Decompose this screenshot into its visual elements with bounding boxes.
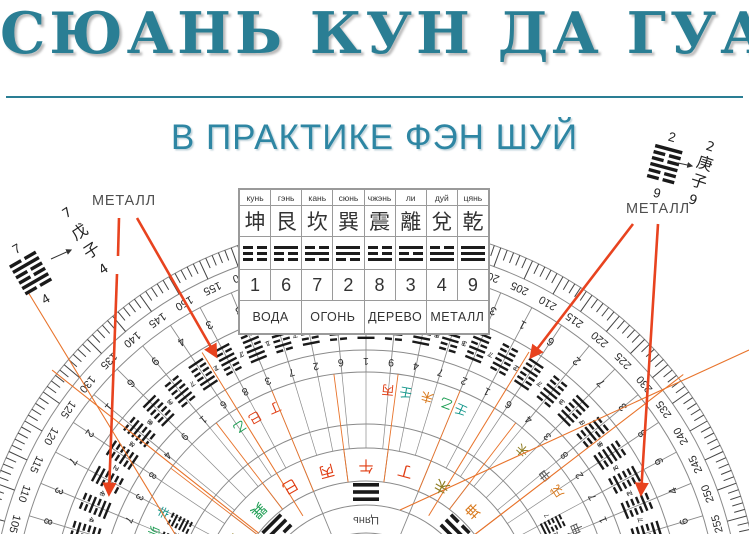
svg-text:7: 7	[122, 515, 135, 525]
trigram-name-cell: ли	[395, 190, 426, 206]
svg-text:丙: 丙	[381, 382, 395, 398]
trigram-icon	[302, 246, 332, 261]
trigram-symbols-row	[240, 237, 489, 270]
svg-text:3: 3	[203, 317, 214, 331]
trigram-symbol-cell	[271, 237, 302, 270]
svg-text:220: 220	[589, 329, 611, 350]
element-cell: МЕТАЛЛ	[426, 301, 488, 334]
annotation-right: 292庚子9	[642, 126, 720, 210]
trigram-icon	[271, 246, 301, 261]
svg-text:1: 1	[363, 355, 369, 367]
svg-text:7: 7	[436, 365, 445, 378]
hanzi-cell: 離	[395, 206, 426, 237]
svg-text:未: 未	[419, 388, 436, 406]
trigram-icon	[333, 246, 363, 261]
svg-text:子: 子	[688, 170, 709, 193]
trigram-number-cell: 6	[271, 270, 302, 301]
svg-text:9: 9	[652, 185, 663, 201]
svg-text:8: 8	[41, 516, 54, 526]
hanzi-cell: 艮	[271, 206, 302, 237]
svg-text:巳: 巳	[279, 475, 301, 498]
svg-text:7: 7	[287, 366, 296, 379]
svg-text:壬: 壬	[398, 384, 413, 401]
svg-text:3: 3	[263, 374, 273, 387]
hanzi-cell: 乾	[457, 206, 488, 237]
svg-text:戌: 戌	[547, 482, 567, 501]
element-cell: ВОДА	[240, 301, 302, 334]
svg-text:午: 午	[358, 457, 373, 475]
svg-text:8: 8	[239, 385, 250, 398]
element-cell: ДЕРЕВО	[364, 301, 426, 334]
hanzi-cell: 震	[364, 206, 395, 237]
svg-text:1: 1	[597, 515, 610, 525]
annotation-left-text: 7戊子4	[57, 203, 115, 280]
svg-text:9: 9	[686, 192, 699, 209]
svg-text:1: 1	[482, 385, 493, 398]
hanzi-cell: 巽	[333, 206, 364, 237]
svg-text:7: 7	[65, 455, 79, 466]
trigram-symbol-cell	[364, 237, 395, 270]
svg-text:6: 6	[503, 398, 515, 411]
trigram-number-cell: 8	[364, 270, 395, 301]
hanzi-cell: 兌	[426, 206, 457, 237]
svg-text:2: 2	[459, 374, 469, 387]
trigram-symbol-cell	[457, 237, 488, 270]
svg-text:巳: 巳	[246, 408, 264, 427]
trigram-number-cell: 4	[426, 270, 457, 301]
trigram-names-row: куньгэньканьсюньчжэньлидуйцянь	[240, 190, 489, 206]
svg-text:2: 2	[571, 354, 584, 367]
trigram-name-cell: сюнь	[333, 190, 364, 206]
svg-text:155: 155	[201, 279, 223, 298]
svg-text:9: 9	[653, 455, 667, 466]
svg-text:115: 115	[27, 454, 45, 475]
svg-text:7: 7	[10, 240, 24, 257]
svg-text:105: 105	[6, 513, 22, 534]
hanzi-cell: 坎	[302, 206, 333, 237]
trigram-hanzi-row: 坤艮坎巽震離兌乾	[240, 206, 489, 237]
trigram-symbol-cell	[395, 237, 426, 270]
svg-text:3: 3	[52, 485, 66, 496]
svg-text:7: 7	[543, 512, 551, 519]
svg-text:6: 6	[217, 398, 229, 411]
svg-text:7: 7	[586, 491, 599, 502]
svg-text:丁: 丁	[266, 399, 283, 418]
svg-text:9: 9	[388, 356, 395, 369]
trigram-number-cell: 9	[457, 270, 488, 301]
annotation-left-hexagram: 74	[0, 235, 62, 313]
svg-text:3: 3	[617, 400, 630, 413]
trigram-icon	[427, 246, 457, 261]
trigram-number-cell: 2	[333, 270, 364, 301]
svg-text:110: 110	[15, 483, 32, 504]
bagua-reference-table: куньгэньканьсюньчжэньлидуйцянь 坤艮坎巽震離兌乾 …	[239, 189, 489, 334]
svg-text:3: 3	[133, 491, 146, 502]
trigram-icon	[458, 246, 488, 261]
svg-text:乙: 乙	[230, 417, 249, 436]
trigram-icon	[396, 246, 426, 261]
trigram-name-cell: кань	[302, 190, 333, 206]
svg-text:7: 7	[60, 205, 75, 222]
hanzi-cell: 坤	[240, 206, 271, 237]
page: СЮАНЬ КУН ДА ГУА В ПРАКТИКЕ ФЭН ШУЙ 1051…	[0, 0, 749, 534]
annotation-left: 747戊子4	[0, 203, 115, 313]
trigram-symbol-cell	[302, 237, 333, 270]
svg-text:4: 4	[667, 485, 681, 496]
svg-text:子: 子	[80, 238, 104, 263]
trigram-name-cell: гэнь	[271, 190, 302, 206]
svg-text:8: 8	[636, 427, 650, 439]
trigram-numbers-row: 16728349	[240, 270, 489, 301]
svg-text:2: 2	[573, 469, 586, 481]
svg-text:丁: 丁	[396, 461, 415, 482]
trigram-icon	[365, 246, 395, 261]
trigram-icon	[240, 246, 270, 261]
svg-text:甲: 甲	[567, 520, 586, 534]
annotation-right-hexagram: 29	[642, 126, 688, 204]
trigram-number-cell: 1	[240, 270, 271, 301]
svg-text:255: 255	[709, 513, 725, 534]
svg-text:6: 6	[337, 356, 344, 369]
metal-label-left: МЕТАЛЛ	[92, 193, 156, 209]
svg-text:140: 140	[121, 329, 143, 350]
element-cell: ОГОНЬ	[302, 301, 364, 334]
svg-text:230: 230	[634, 373, 655, 395]
svg-text:坤: 坤	[462, 499, 485, 522]
trigram-name-cell: чжэнь	[364, 190, 395, 206]
svg-text:205: 205	[509, 279, 531, 298]
trigram-name-cell: кунь	[240, 190, 271, 206]
svg-text:1: 1	[517, 317, 528, 331]
svg-text:4: 4	[412, 359, 420, 372]
svg-text:Цянь: Цянь	[353, 514, 379, 526]
svg-text:4: 4	[39, 291, 53, 308]
svg-text:丙: 丙	[317, 461, 336, 482]
svg-text:9: 9	[148, 354, 161, 367]
svg-text:4: 4	[175, 334, 187, 348]
svg-text:2: 2	[667, 129, 678, 145]
elements-row: ВОДАОГОНЬДЕРЕВОМЕТАЛЛ	[240, 301, 489, 334]
trigram-symbol-cell	[240, 237, 271, 270]
svg-text:2: 2	[82, 427, 96, 439]
svg-text:250: 250	[699, 483, 717, 504]
svg-text:6: 6	[678, 516, 691, 526]
trigram-name-cell: цянь	[457, 190, 488, 206]
svg-text:卯: 卯	[144, 524, 163, 534]
svg-text:8: 8	[146, 469, 159, 481]
svg-text:2: 2	[312, 359, 320, 372]
svg-text:245: 245	[687, 453, 706, 475]
svg-text:巽: 巽	[247, 499, 270, 522]
metal-label-right: МЕТАЛЛ	[626, 201, 690, 217]
trigram-symbol-cell	[333, 237, 364, 270]
trigram-number-cell: 3	[395, 270, 426, 301]
trigram-number-cell: 7	[302, 270, 333, 301]
trigram-symbol-cell	[426, 237, 457, 270]
svg-text:3: 3	[488, 304, 499, 318]
trigram-name-cell: дуй	[426, 190, 457, 206]
annotation-right-text: 2庚子9	[683, 138, 720, 210]
svg-text:4: 4	[96, 261, 111, 278]
